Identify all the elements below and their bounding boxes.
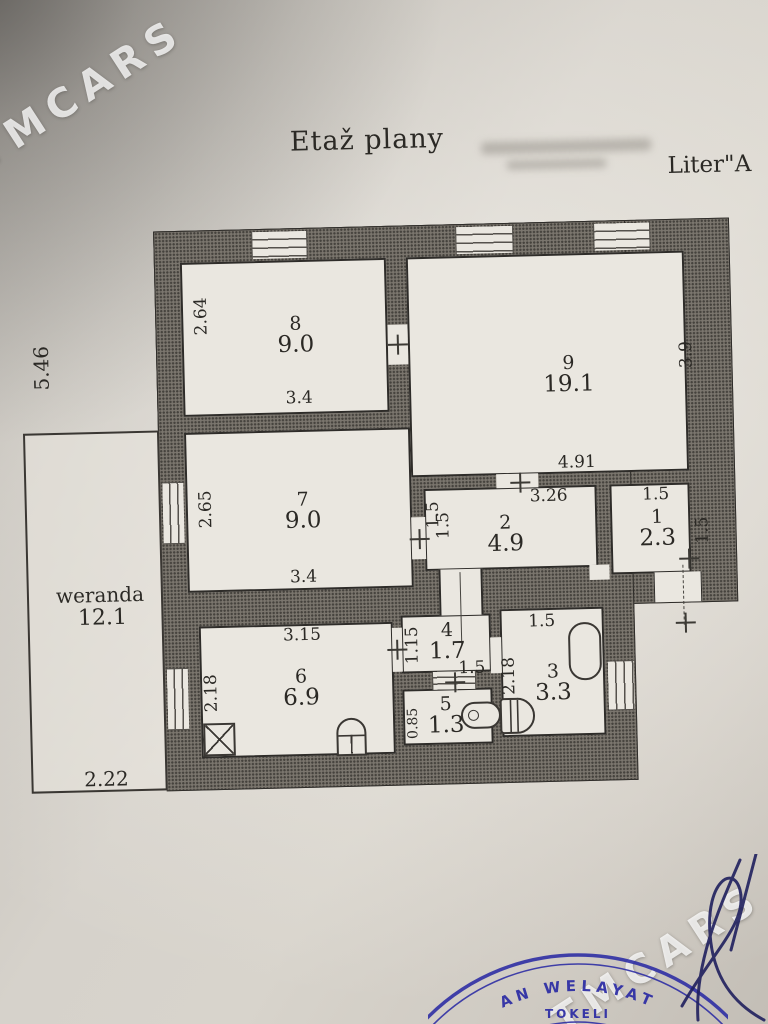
dimension-tick bbox=[388, 334, 408, 354]
window-top-room9-right bbox=[593, 222, 651, 250]
dim-room4-left: 1.15 bbox=[402, 626, 423, 664]
dim-room2-left: 1.5 bbox=[423, 501, 444, 529]
room-6-label: 6 6.9 bbox=[282, 667, 320, 711]
toilet-icon bbox=[461, 701, 502, 729]
bleed-through-text bbox=[481, 138, 651, 154]
veranda-area: 12.1 bbox=[78, 605, 128, 631]
window-top-room9-left bbox=[455, 226, 514, 254]
dimension-tick bbox=[510, 472, 530, 492]
window-top-room8 bbox=[251, 231, 308, 259]
room-1-label: 1 2.3 bbox=[639, 507, 677, 551]
room-5-label: 5 1.3 bbox=[427, 695, 465, 739]
dim-room9-right: 3.9 bbox=[676, 341, 697, 369]
dim-room8-left: 2.64 bbox=[191, 297, 212, 335]
entrance-door-opening bbox=[654, 571, 703, 602]
room-area: 9.0 bbox=[285, 509, 322, 533]
dim-room3-left: 2.18 bbox=[499, 657, 520, 695]
veranda-label: weranda bbox=[56, 582, 145, 608]
stamp-inner-text: TOKELI bbox=[545, 1007, 611, 1021]
bleed-through-text bbox=[506, 158, 606, 169]
page-title: Etaž plany bbox=[289, 123, 444, 158]
room-2-label: 2 4.9 bbox=[487, 513, 525, 557]
bathtub-icon bbox=[568, 622, 602, 681]
room-7-label: 7 9.0 bbox=[284, 490, 322, 534]
room-area: 19.1 bbox=[543, 373, 595, 398]
room-area: 4.9 bbox=[487, 533, 524, 557]
window-left-room7 bbox=[162, 482, 185, 544]
furnace-icon bbox=[336, 718, 367, 757]
liter-label: Liter"A bbox=[667, 151, 751, 179]
signature bbox=[636, 854, 768, 1024]
window-left-room6 bbox=[167, 668, 190, 730]
room-3-label: 3 3.3 bbox=[534, 662, 572, 706]
dim-room8-bottom: 3.4 bbox=[285, 388, 313, 409]
dim-room9-bottom: 4.91 bbox=[558, 452, 596, 473]
dimension-tick bbox=[409, 529, 429, 549]
dim-room7-bottom: 3.4 bbox=[290, 567, 318, 588]
dim-room1-top: 1.5 bbox=[642, 484, 670, 505]
dim-veranda-left: 5.46 bbox=[29, 346, 54, 391]
dimension-tick bbox=[676, 612, 696, 632]
dim-room4-bottom: 1.5 bbox=[458, 658, 486, 679]
dim-room3-top: 1.5 bbox=[528, 611, 556, 632]
dim-room7-left: 2.65 bbox=[195, 490, 216, 528]
room-area: 3.3 bbox=[535, 681, 572, 705]
room-8-label: 8 9.0 bbox=[277, 314, 315, 358]
stove-icon bbox=[203, 723, 236, 757]
room-area: 1.3 bbox=[428, 714, 465, 738]
dim-room6-left: 2.18 bbox=[201, 674, 222, 712]
floor-plan-photo: Etaž plany Liter"A bbox=[0, 0, 768, 1024]
window-right-room3 bbox=[608, 660, 635, 711]
room-area: 9.0 bbox=[277, 334, 314, 358]
dim-room1-right: 1.5 bbox=[692, 516, 713, 544]
dim-room2-top: 3.26 bbox=[529, 486, 567, 507]
door-opening-room2-hall bbox=[589, 565, 609, 580]
room-area: 2.3 bbox=[639, 527, 676, 551]
dim-veranda-bottom: 2.22 bbox=[84, 766, 129, 791]
room-area: 6.9 bbox=[283, 687, 320, 711]
dim-room5-left: 0.85 bbox=[405, 708, 422, 740]
dim-room6-top: 3.15 bbox=[283, 625, 321, 646]
room-9-label: 9 19.1 bbox=[543, 353, 595, 397]
